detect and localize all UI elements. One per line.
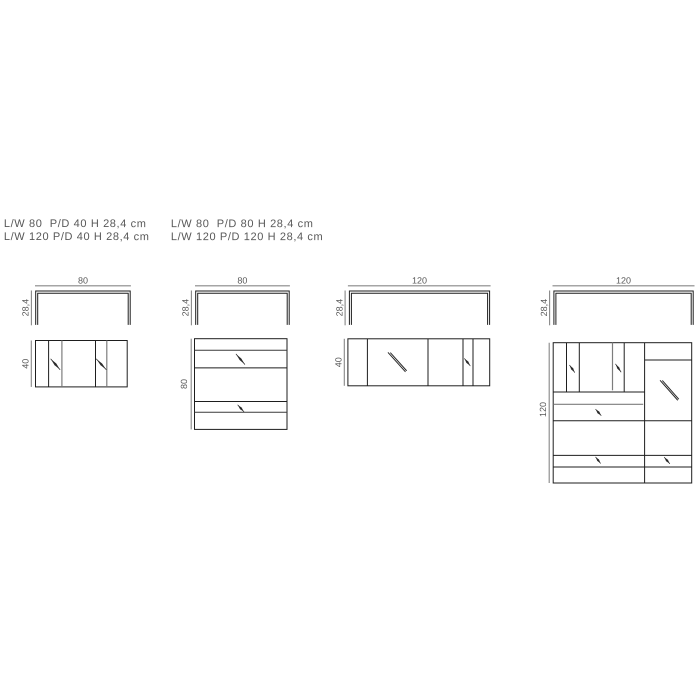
svg-text:28,4: 28,4 (334, 299, 344, 317)
svg-text:40: 40 (333, 357, 343, 367)
svg-text:80: 80 (179, 379, 189, 389)
svg-text:L/W 80 P/D 80 H 28,4 cm: L/W 80 P/D 80 H 28,4 cm (171, 218, 314, 230)
svg-text:L/W 120 P/D 40 H 28,4 cm: L/W 120 P/D 40 H 28,4 cm (4, 231, 150, 243)
svg-text:120: 120 (616, 276, 631, 286)
svg-text:28,4: 28,4 (21, 299, 31, 317)
svg-text:120: 120 (538, 402, 548, 417)
svg-text:28,4: 28,4 (181, 299, 191, 317)
svg-text:80: 80 (237, 276, 247, 286)
svg-text:40: 40 (20, 359, 30, 369)
svg-text:L/W 80 P/D 40 H 28,4 cm: L/W 80 P/D 40 H 28,4 cm (4, 218, 147, 230)
svg-text:120: 120 (412, 276, 427, 286)
svg-text:L/W 120 P/D 120 H 28,4 cm: L/W 120 P/D 120 H 28,4 cm (171, 231, 323, 243)
svg-text:80: 80 (78, 276, 88, 286)
svg-text:28,4: 28,4 (539, 299, 549, 317)
